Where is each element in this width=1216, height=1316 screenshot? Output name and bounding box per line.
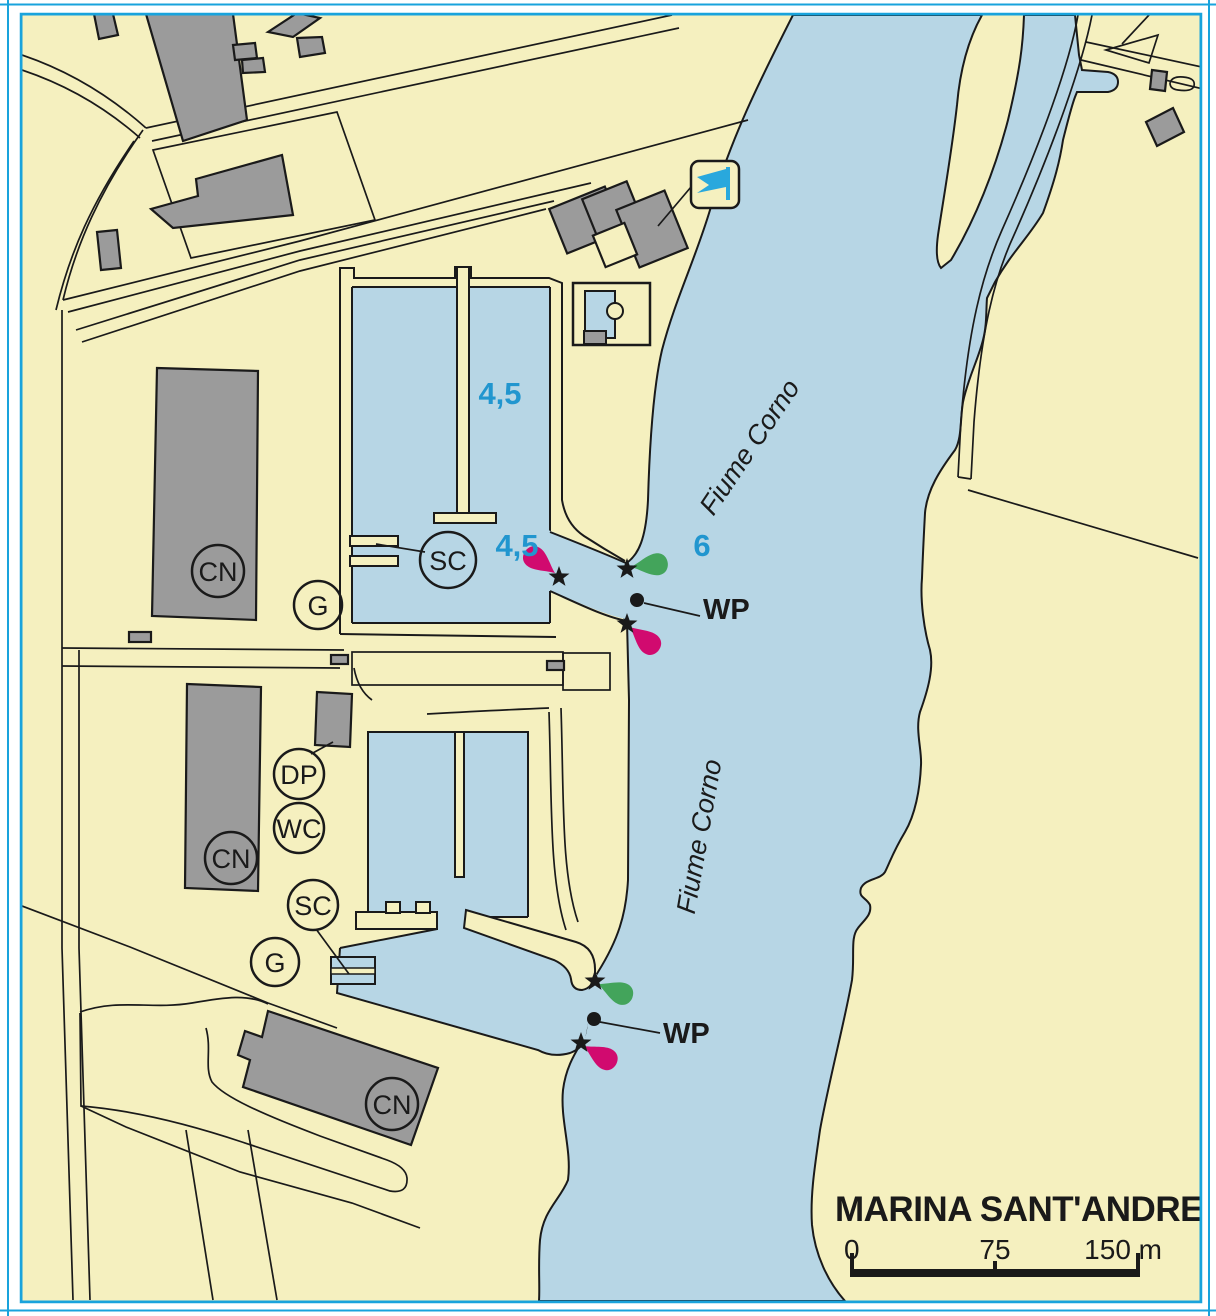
- building: [331, 655, 348, 664]
- building: [97, 230, 121, 270]
- yacht-club-flag: [691, 161, 739, 208]
- label-g-2: G: [264, 948, 285, 978]
- basin-middle-pier: [455, 732, 464, 877]
- label-wc: WC: [277, 814, 322, 844]
- waypoint-dot: [630, 593, 644, 607]
- label-cn-3: CN: [373, 1090, 412, 1120]
- building: [94, 14, 118, 39]
- label-dp: DP: [280, 760, 318, 790]
- label-g-1: G: [307, 591, 328, 621]
- depth-entrance: 4,5: [495, 528, 538, 563]
- building: [547, 661, 564, 670]
- building: [233, 43, 257, 60]
- label-cn-2: CN: [212, 844, 251, 874]
- building-dp: [315, 692, 352, 747]
- label-cn-1: CN: [199, 557, 238, 587]
- chart-title: MARINA SANT'ANDREA: [835, 1190, 1216, 1229]
- label-sc-2: SC: [294, 891, 332, 921]
- scale-end: 150 m: [1084, 1234, 1162, 1265]
- depth-river: 6: [693, 528, 710, 563]
- building: [297, 37, 325, 57]
- label-sc-1: SC: [429, 546, 467, 576]
- waypoint-dot: [587, 1012, 601, 1026]
- marina-chart-svg: CN CN CN G G SC SC DP WC 4,5 4,5 6 WP WP…: [0, 0, 1216, 1316]
- scale-mid: 75: [979, 1234, 1010, 1265]
- building: [1150, 70, 1167, 91]
- chart-page: CN CN CN G G SC SC DP WC 4,5 4,5 6 WP WP…: [0, 0, 1216, 1316]
- waypoint-label-2: WP: [663, 1018, 710, 1050]
- basin-middle-water: [368, 732, 528, 917]
- building: [242, 58, 265, 73]
- depth-basin: 4,5: [478, 376, 521, 411]
- waypoint-label-1: WP: [703, 594, 750, 626]
- slipway: [331, 957, 375, 984]
- building: [129, 632, 151, 642]
